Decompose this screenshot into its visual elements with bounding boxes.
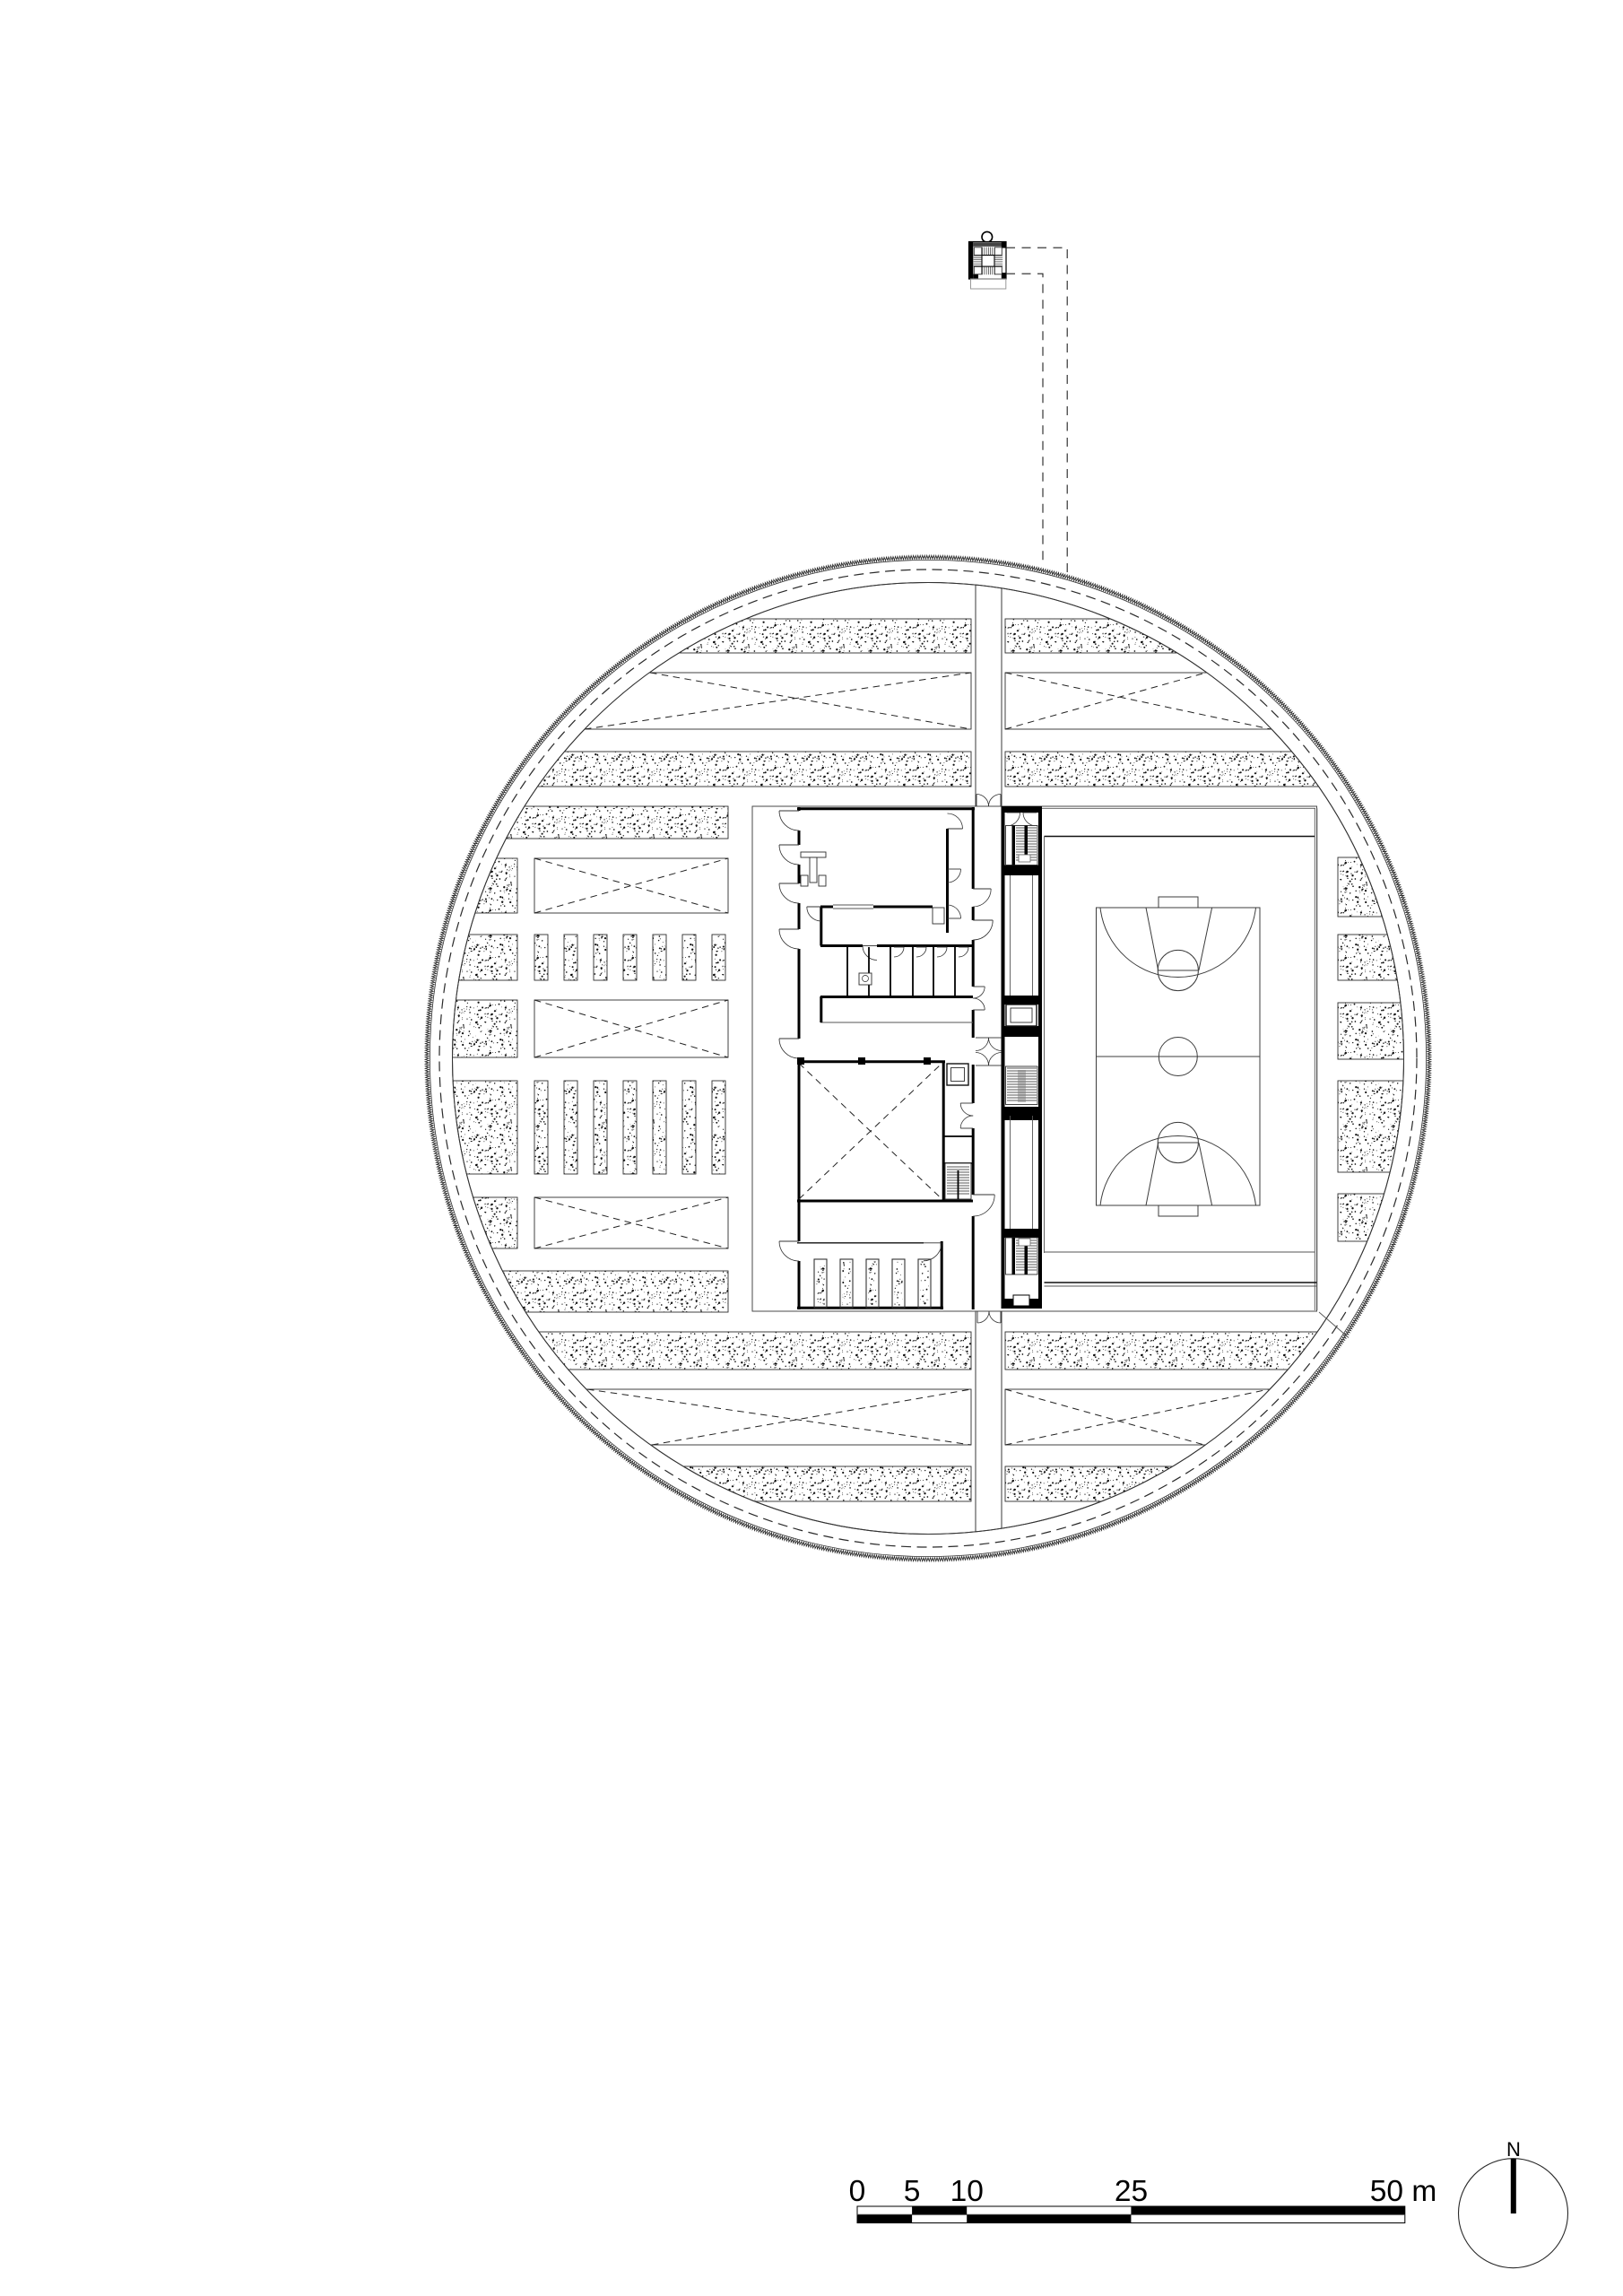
svg-text:N: N (1506, 2138, 1521, 2161)
svg-text:5: 5 (904, 2175, 921, 2208)
svg-text:10: 10 (950, 2175, 984, 2208)
svg-text:50 m: 50 m (1370, 2175, 1436, 2208)
svg-text:0: 0 (849, 2175, 866, 2208)
svg-text:25: 25 (1115, 2175, 1148, 2208)
